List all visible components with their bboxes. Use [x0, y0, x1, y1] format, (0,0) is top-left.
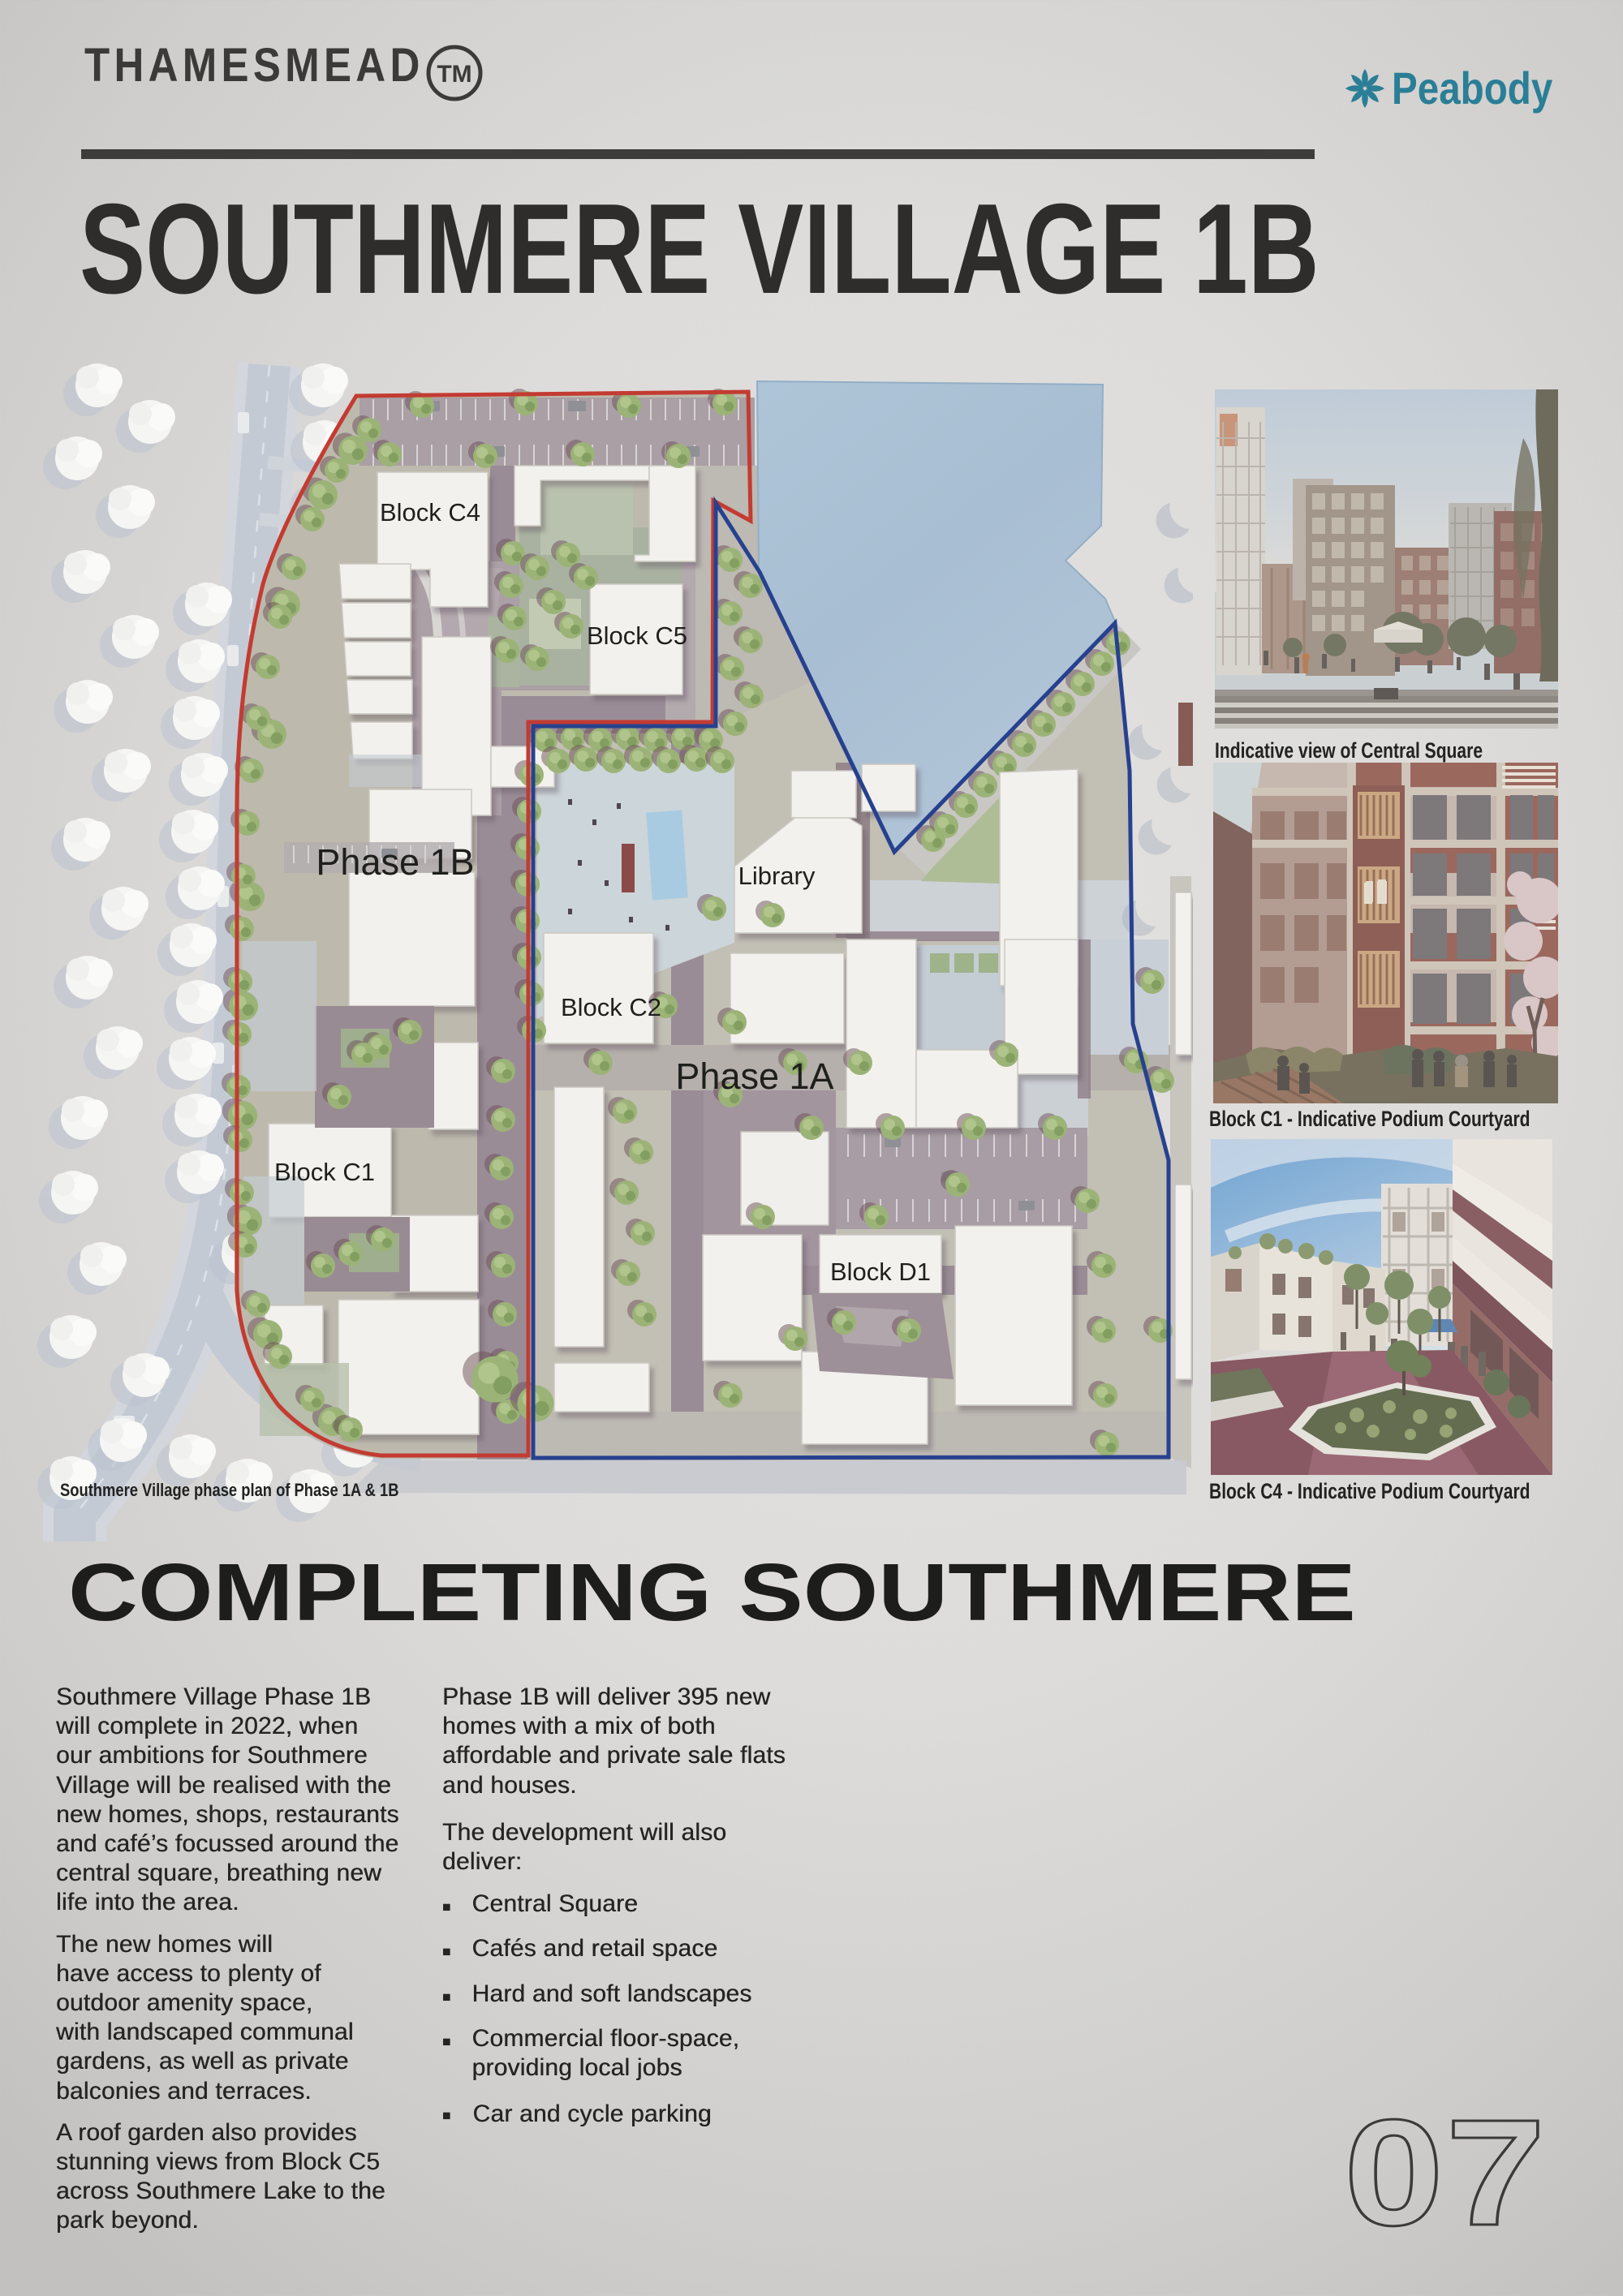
svg-text:Block C1: Block C1 [274, 1158, 375, 1186]
svg-text:Block D1: Block D1 [830, 1258, 931, 1286]
svg-text:Phase 1A: Phase 1A [675, 1056, 833, 1097]
svg-text:Block C2: Block C2 [561, 993, 661, 1021]
svg-text:Library: Library [738, 862, 816, 890]
svg-text:Block C5: Block C5 [587, 621, 687, 650]
svg-text:TM: TM [437, 61, 471, 88]
svg-text:Phase 1B: Phase 1B [316, 841, 474, 883]
svg-text:Block C4: Block C4 [380, 498, 480, 527]
svg-text:Peabody: Peabody [1392, 67, 1552, 114]
